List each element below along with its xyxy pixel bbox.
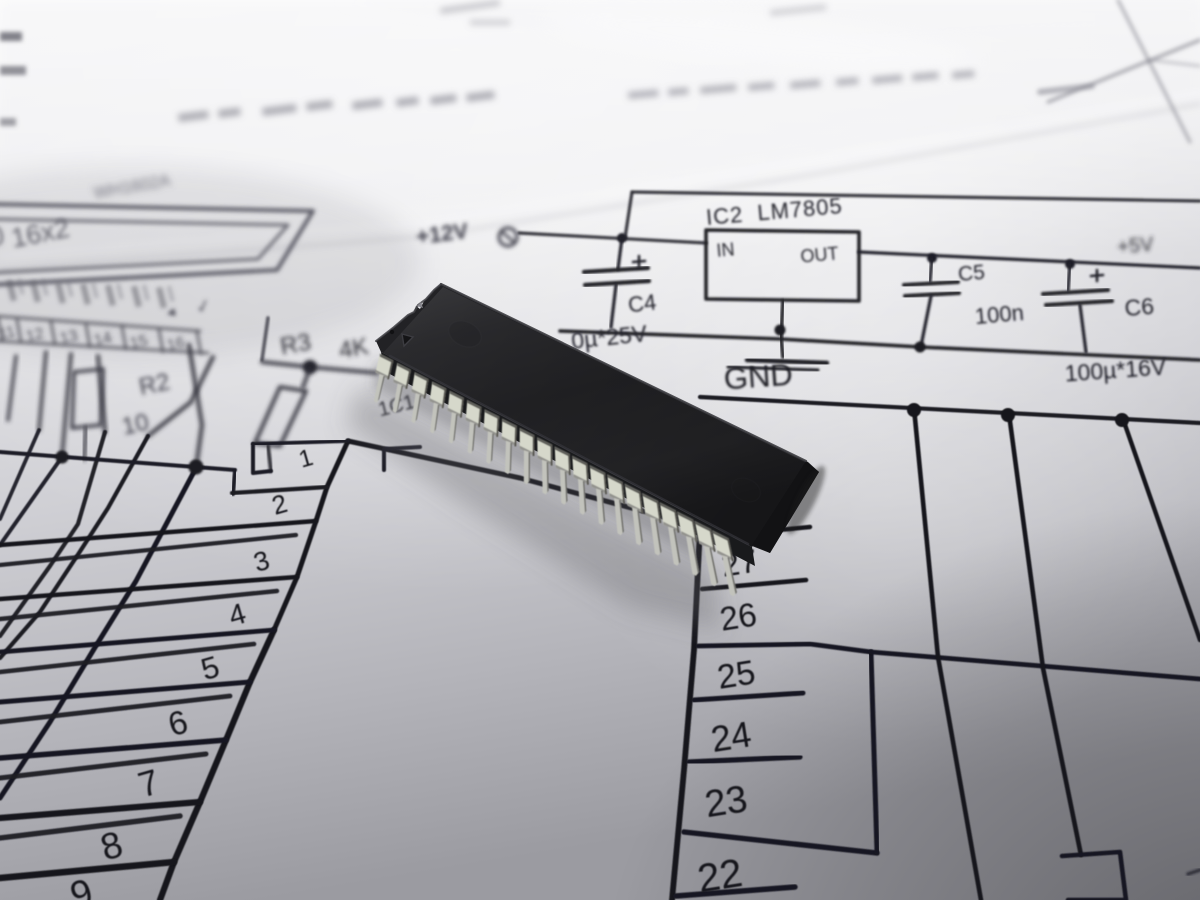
- svg-text:C6: C6: [1124, 293, 1156, 321]
- svg-text:24: 24: [708, 713, 754, 760]
- svg-text:R3: R3: [278, 329, 313, 361]
- svg-text:100n: 100n: [974, 300, 1025, 329]
- svg-text:26: 26: [717, 595, 759, 637]
- svg-text:IN: IN: [716, 239, 736, 260]
- svg-text:23: 23: [702, 778, 750, 826]
- svg-text:22: 22: [695, 851, 746, 900]
- svg-text:10: 10: [120, 409, 152, 441]
- svg-text:25: 25: [715, 653, 758, 696]
- svg-text:C5: C5: [957, 261, 986, 286]
- svg-text:4K: 4K: [337, 333, 371, 365]
- svg-text:C4: C4: [627, 289, 658, 317]
- svg-text:OUT: OUT: [800, 243, 840, 266]
- svg-text:+5V: +5V: [1117, 233, 1156, 258]
- svg-text:GND: GND: [723, 357, 794, 397]
